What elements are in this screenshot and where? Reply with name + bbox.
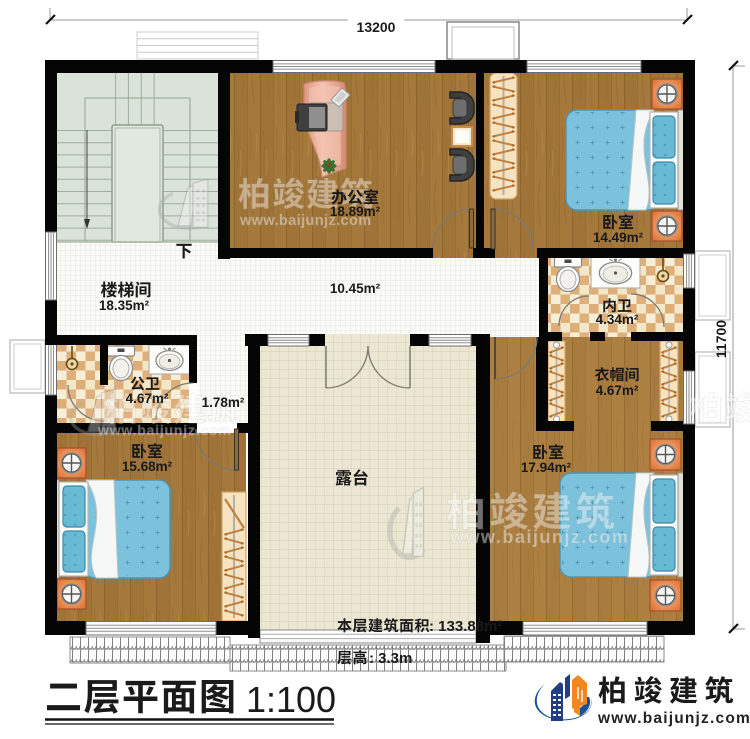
svg-text:1.78m²: 1.78m² xyxy=(202,395,245,410)
svg-text:www.baijunjz.com: www.baijunjz.com xyxy=(97,422,232,438)
svg-text:14.49m²: 14.49m² xyxy=(593,230,644,245)
svg-text:17.94m²: 17.94m² xyxy=(521,460,572,475)
svg-text:www.baijunjz.com: www.baijunjz.com xyxy=(597,710,750,727)
svg-text:www.baijunjz.com: www.baijunjz.com xyxy=(449,527,629,547)
svg-text:13200: 13200 xyxy=(357,19,396,35)
svg-text:1:100: 1:100 xyxy=(246,679,336,720)
svg-text:: 133.88m²: : 133.88m² xyxy=(429,618,502,635)
svg-text:: 3.3m: : 3.3m xyxy=(369,650,412,667)
svg-text:18.35m²: 18.35m² xyxy=(99,298,150,313)
svg-text:18.89m²: 18.89m² xyxy=(330,204,381,219)
svg-text:11700: 11700 xyxy=(713,320,729,358)
svg-text:4.67m²: 4.67m² xyxy=(596,383,639,398)
svg-text:4.34m²: 4.34m² xyxy=(596,312,639,327)
svg-text:15.68m²: 15.68m² xyxy=(122,459,173,474)
svg-text:4.67m²: 4.67m² xyxy=(126,391,169,406)
svg-text:10.45m²: 10.45m² xyxy=(330,281,381,296)
